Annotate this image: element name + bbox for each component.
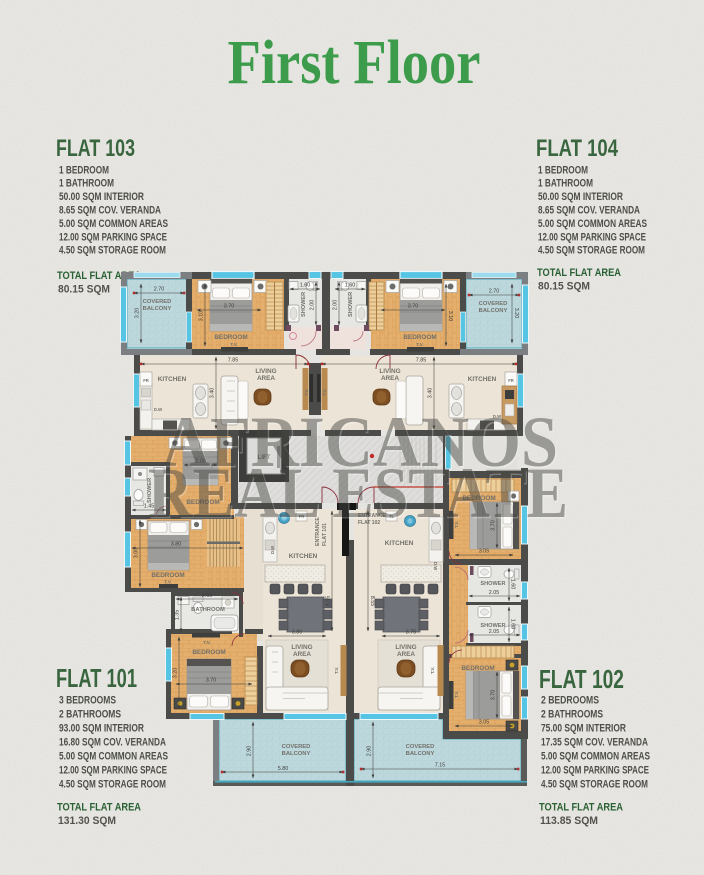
svg-text:2 BEDROOMS: 2 BEDROOMS	[541, 695, 599, 707]
svg-text:5.00 SQM COMMON AREAS: 5.00 SQM COMMON AREAS	[59, 218, 168, 230]
svg-text:BEDROOM: BEDROOM	[214, 334, 247, 341]
svg-text:7.85: 7.85	[416, 358, 427, 364]
svg-text:COVERED: COVERED	[282, 744, 311, 750]
svg-text:8.55: 8.55	[326, 596, 332, 607]
svg-text:2.70: 2.70	[154, 287, 165, 293]
svg-text:FLAT 102: FLAT 102	[539, 664, 624, 694]
svg-text:16.80 SQM COV. VERANDA: 16.80 SQM COV. VERANDA	[59, 737, 166, 749]
svg-text:8.65 SQM COV. VERANDA: 8.65 SQM COV. VERANDA	[59, 205, 161, 217]
svg-text:T.V.: T.V.	[430, 667, 435, 674]
svg-text:7.85: 7.85	[228, 358, 239, 364]
svg-text:12.00 SQM PARKING SPACE: 12.00 SQM PARKING SPACE	[538, 231, 646, 243]
svg-text:5.80: 5.80	[278, 766, 289, 772]
svg-text:T.V.: T.V.	[304, 389, 309, 396]
svg-text:17.35 SQM COV. VERANDA: 17.35 SQM COV. VERANDA	[541, 737, 648, 749]
svg-text:3.05: 3.05	[479, 720, 490, 726]
svg-text:BEDROOM: BEDROOM	[151, 572, 184, 579]
svg-text:2 BATHROOMS: 2 BATHROOMS	[59, 709, 121, 721]
svg-text:4.50 SQM STORAGE ROOM: 4.50 SQM STORAGE ROOM	[59, 779, 166, 791]
svg-text:AREA: AREA	[381, 375, 399, 382]
svg-text:LIVING: LIVING	[291, 644, 312, 651]
svg-text:1.60: 1.60	[300, 283, 311, 289]
svg-text:50.00 SQM INTERIOR: 50.00 SQM INTERIOR	[538, 191, 623, 203]
svg-text:3 BEDROOMS: 3 BEDROOMS	[59, 695, 116, 707]
svg-text:KITCHEN: KITCHEN	[158, 376, 187, 383]
svg-text:3.10: 3.10	[199, 311, 205, 322]
svg-text:T.V.: T.V.	[454, 691, 459, 698]
svg-text:REAL ESTATE: REAL ESTATE	[148, 453, 568, 533]
svg-text:8.55: 8.55	[369, 596, 375, 607]
svg-text:COVERED: COVERED	[143, 299, 172, 305]
svg-text:SHOWER: SHOWER	[301, 292, 307, 317]
svg-text:5.00 SQM COMMON AREAS: 5.00 SQM COMMON AREAS	[538, 218, 647, 230]
svg-text:FLAT 101: FLAT 101	[56, 663, 137, 693]
svg-text:5.00 SQM COMMON AREAS: 5.00 SQM COMMON AREAS	[541, 751, 650, 763]
svg-text:FR: FR	[508, 378, 514, 383]
svg-text:T.V.: T.V.	[203, 640, 210, 645]
svg-text:1.60: 1.60	[345, 283, 356, 289]
svg-text:BEDROOM: BEDROOM	[192, 649, 225, 656]
svg-text:BALCONY: BALCONY	[282, 751, 311, 757]
svg-text:T.V.: T.V.	[322, 389, 327, 396]
svg-text:1.60: 1.60	[510, 619, 516, 630]
svg-text:1.60: 1.60	[510, 579, 516, 590]
svg-text:SHOWER: SHOWER	[348, 292, 354, 317]
svg-text:3.20: 3.20	[513, 308, 519, 319]
svg-text:KITCHEN: KITCHEN	[468, 376, 497, 383]
svg-text:TOTAL FLAT AREA: TOTAL FLAT AREA	[537, 267, 621, 279]
svg-text:2.70: 2.70	[489, 289, 500, 295]
svg-text:3.05: 3.05	[479, 549, 490, 555]
svg-text:FLAT 103: FLAT 103	[56, 135, 135, 162]
svg-text:3.40: 3.40	[210, 388, 216, 399]
svg-text:4.50 SQM STORAGE ROOM: 4.50 SQM STORAGE ROOM	[59, 245, 166, 257]
svg-text:2.00: 2.00	[333, 300, 339, 311]
svg-text:2.90: 2.90	[367, 746, 373, 757]
svg-text:12.00 SQM PARKING SPACE: 12.00 SQM PARKING SPACE	[541, 765, 649, 777]
svg-text:BEDROOM: BEDROOM	[403, 334, 436, 341]
svg-text:FLAT 104: FLAT 104	[536, 135, 618, 162]
svg-text:D.W: D.W	[433, 562, 438, 570]
svg-text:AREA: AREA	[397, 651, 415, 658]
svg-text:COVERED: COVERED	[406, 744, 435, 750]
svg-text:50.00 SQM INTERIOR: 50.00 SQM INTERIOR	[59, 191, 144, 203]
svg-text:3.00: 3.00	[134, 548, 140, 559]
svg-text:5.00 SQM COMMON AREAS: 5.00 SQM COMMON AREAS	[59, 751, 168, 763]
svg-text:T.V.: T.V.	[230, 342, 237, 347]
svg-text:93.00 SQM INTERIOR: 93.00 SQM INTERIOR	[59, 723, 144, 735]
svg-text:3.70: 3.70	[224, 304, 235, 310]
svg-text:2.60: 2.60	[202, 593, 213, 599]
svg-text:2.90: 2.90	[247, 746, 253, 757]
svg-text:AREA: AREA	[293, 651, 311, 658]
svg-text:1 BATHROOM: 1 BATHROOM	[59, 178, 114, 190]
svg-text:SHOWER: SHOWER	[480, 581, 505, 587]
svg-text:BEDROOM: BEDROOM	[461, 665, 494, 672]
svg-text:3.75: 3.75	[406, 630, 417, 636]
svg-text:1.35: 1.35	[175, 610, 181, 621]
svg-text:3.70: 3.70	[206, 678, 217, 684]
svg-text:LIVING: LIVING	[379, 368, 400, 375]
svg-text:80.15 SQM: 80.15 SQM	[58, 284, 110, 296]
svg-text:D.W: D.W	[154, 407, 162, 412]
svg-text:1 BEDROOM: 1 BEDROOM	[538, 164, 588, 176]
svg-text:3.20: 3.20	[135, 308, 141, 319]
svg-text:KITCHEN: KITCHEN	[289, 553, 318, 560]
svg-text:2.05: 2.05	[489, 629, 500, 635]
svg-text:BALCONY: BALCONY	[406, 751, 435, 757]
svg-text:3.40: 3.40	[428, 388, 434, 399]
svg-text:FR: FR	[143, 378, 149, 383]
svg-text:8.65 SQM COV. VERANDA: 8.65 SQM COV. VERANDA	[538, 205, 640, 217]
svg-text:D.W: D.W	[270, 546, 275, 554]
svg-text:3.70: 3.70	[491, 690, 497, 701]
svg-text:2 BATHROOMS: 2 BATHROOMS	[541, 709, 603, 721]
svg-text:BALCONY: BALCONY	[143, 306, 172, 312]
svg-text:3.80: 3.80	[292, 630, 303, 636]
svg-text:12.00 SQM PARKING SPACE: 12.00 SQM PARKING SPACE	[59, 765, 167, 777]
svg-text:7.15: 7.15	[435, 763, 446, 769]
svg-text:131.30 SQM: 131.30 SQM	[58, 815, 116, 827]
svg-text:LIVING: LIVING	[395, 644, 416, 651]
svg-text:LIVING: LIVING	[255, 368, 276, 375]
svg-text:113.85 SQM: 113.85 SQM	[540, 815, 598, 827]
svg-text:12.00 SQM PARKING SPACE: 12.00 SQM PARKING SPACE	[59, 231, 167, 243]
svg-text:75.00 SQM INTERIOR: 75.00 SQM INTERIOR	[541, 723, 626, 735]
svg-text:BATHROOM: BATHROOM	[191, 607, 225, 613]
svg-text:KITCHEN: KITCHEN	[385, 540, 414, 547]
svg-text:2.00: 2.00	[310, 300, 316, 311]
svg-text:4.50 SQM STORAGE ROOM: 4.50 SQM STORAGE ROOM	[538, 245, 645, 257]
svg-text:First Floor: First Floor	[228, 29, 481, 97]
svg-text:3.70: 3.70	[408, 304, 419, 310]
svg-text:AREA: AREA	[257, 375, 275, 382]
svg-text:T.V.: T.V.	[416, 342, 423, 347]
svg-text:TOTAL FLAT AREA: TOTAL FLAT AREA	[539, 802, 623, 814]
svg-text:1 BEDROOM: 1 BEDROOM	[59, 164, 109, 176]
svg-text:TOTAL FLAT AREA: TOTAL FLAT AREA	[57, 802, 141, 814]
svg-text:2.05: 2.05	[489, 590, 500, 596]
svg-text:COVERED: COVERED	[479, 301, 508, 307]
svg-text:BALCONY: BALCONY	[479, 308, 508, 314]
svg-text:T.V.: T.V.	[164, 580, 171, 585]
svg-text:80.15 SQM: 80.15 SQM	[538, 281, 590, 293]
svg-text:3.80: 3.80	[171, 542, 182, 548]
svg-text:3.10: 3.10	[447, 311, 453, 322]
svg-text:3.20: 3.20	[173, 668, 179, 679]
svg-text:T.V.: T.V.	[334, 667, 339, 674]
svg-text:4.50 SQM STORAGE ROOM: 4.50 SQM STORAGE ROOM	[541, 779, 648, 791]
svg-text:1 BATHROOM: 1 BATHROOM	[538, 178, 593, 190]
